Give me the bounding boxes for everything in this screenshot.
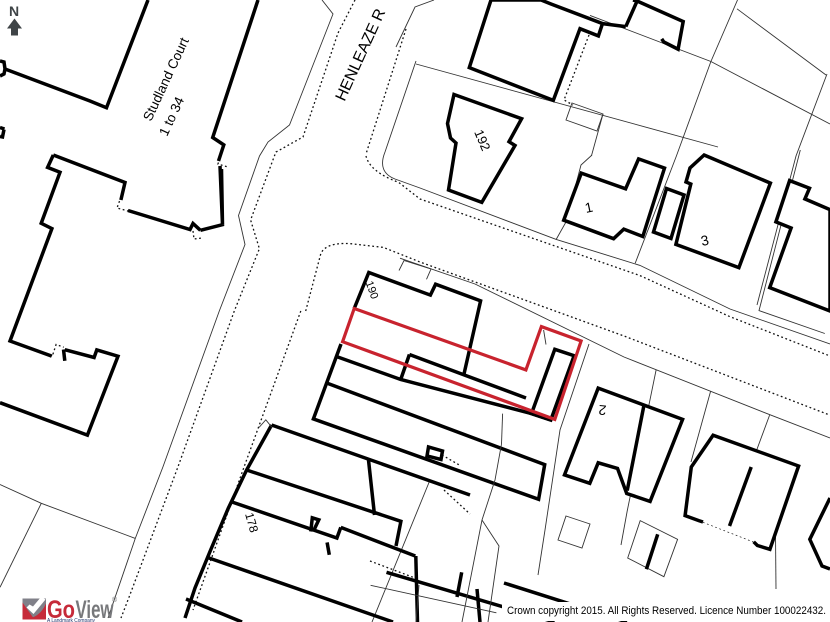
svg-text:Crown copyright 2015. All Righ: Crown copyright 2015. All Rights Reserve…: [507, 605, 826, 617]
svg-text:®: ®: [112, 596, 118, 604]
svg-text:2: 2: [598, 402, 607, 419]
svg-text:A Landmark Company: A Landmark Company: [47, 618, 95, 622]
svg-text:N: N: [9, 3, 19, 19]
